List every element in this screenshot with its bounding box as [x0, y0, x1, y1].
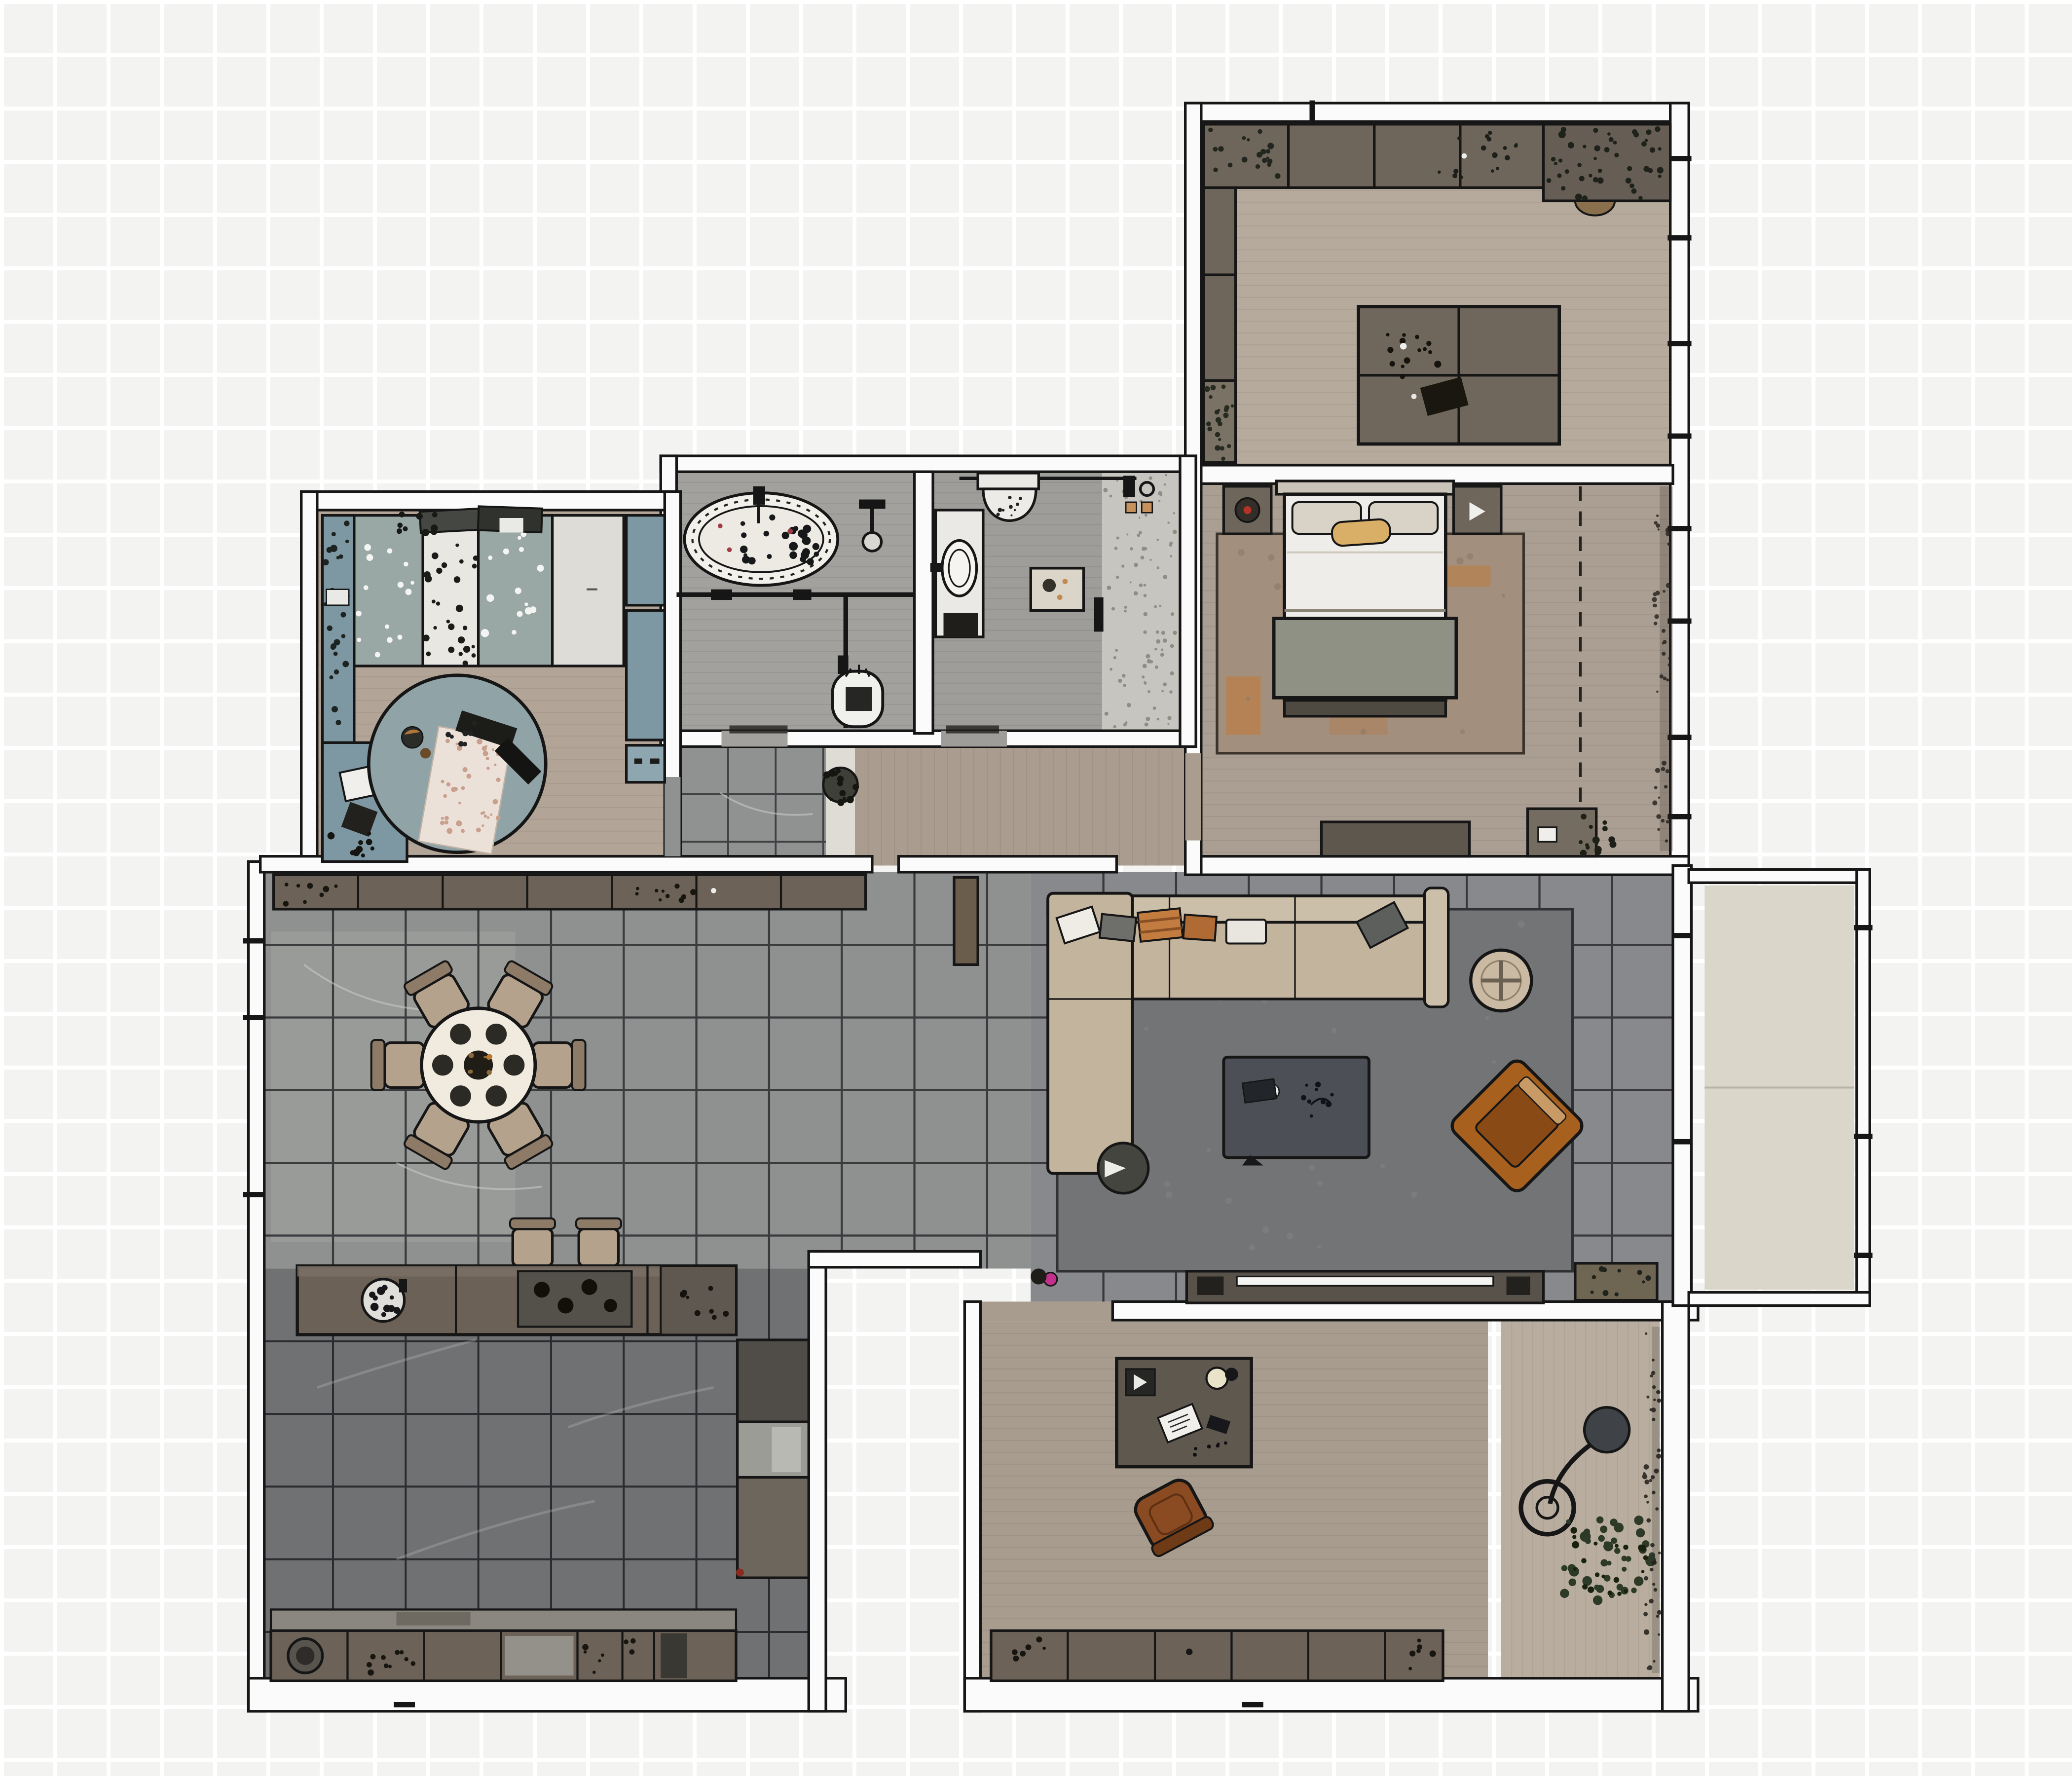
speck — [1492, 152, 1497, 158]
speck — [598, 1659, 601, 1662]
speck — [1496, 167, 1499, 170]
speck — [1626, 178, 1631, 184]
speck — [1173, 512, 1175, 514]
speck — [814, 552, 819, 557]
speck — [1009, 505, 1013, 509]
speck — [335, 720, 341, 725]
speck — [483, 751, 487, 755]
dinner-plate — [504, 1055, 525, 1076]
speck — [839, 790, 846, 796]
speck — [1025, 514, 1027, 516]
speck — [1636, 1528, 1645, 1537]
speck — [1452, 173, 1457, 178]
speck — [1423, 347, 1427, 351]
speck — [764, 531, 770, 537]
speck — [1107, 586, 1111, 590]
speck — [1013, 1656, 1019, 1662]
decor-speck — [1462, 153, 1467, 159]
speck — [377, 1287, 385, 1295]
dinner-plate — [450, 1085, 471, 1107]
desk-lamp-arm — [1225, 1368, 1238, 1381]
sideboard — [273, 875, 865, 909]
speck — [1654, 622, 1658, 626]
speck — [1330, 1093, 1333, 1096]
speck — [487, 816, 490, 819]
speck — [1166, 1191, 1173, 1198]
speck — [1593, 128, 1598, 133]
speck — [1390, 361, 1395, 367]
speck — [436, 568, 442, 574]
speck — [459, 559, 464, 564]
speck — [518, 536, 521, 540]
speck — [1656, 515, 1659, 517]
speck — [1641, 1570, 1645, 1573]
speck — [424, 571, 431, 578]
speck — [1639, 1545, 1646, 1552]
speck — [1662, 761, 1666, 766]
vanity-stool — [944, 613, 978, 637]
speck — [1598, 169, 1602, 173]
speck — [1111, 607, 1115, 610]
speck — [837, 799, 844, 806]
speck — [385, 625, 389, 629]
speck — [1617, 1591, 1622, 1596]
speck — [1142, 547, 1146, 551]
speck — [461, 829, 465, 833]
speck — [1593, 1595, 1602, 1605]
speck — [432, 512, 438, 518]
speck — [1426, 341, 1432, 346]
speck — [456, 605, 463, 612]
stool-seat — [513, 1229, 552, 1266]
speck — [387, 637, 393, 643]
window-tick — [1309, 101, 1315, 124]
speck — [1572, 1535, 1576, 1539]
speck — [1560, 1589, 1569, 1598]
speck — [433, 626, 437, 629]
speck — [387, 548, 393, 554]
speck — [463, 661, 468, 666]
speck — [416, 513, 423, 520]
speck — [400, 1650, 404, 1654]
partition-clamp — [711, 590, 732, 600]
window-tick — [1667, 235, 1691, 241]
red-dot-item — [736, 1568, 744, 1576]
speck — [1167, 716, 1171, 720]
wall-shadow — [1660, 486, 1673, 851]
speck — [1652, 800, 1657, 805]
speck — [1614, 1548, 1620, 1554]
speck — [342, 661, 349, 667]
speck — [1607, 132, 1611, 136]
hallway-strip-floor — [826, 746, 855, 865]
speck — [537, 565, 544, 572]
speck — [1481, 146, 1486, 151]
speck — [1167, 521, 1170, 524]
speck — [458, 802, 461, 805]
speck — [1644, 1629, 1649, 1635]
shower-head-2 — [1123, 476, 1135, 497]
speck — [655, 889, 658, 892]
speck — [1169, 542, 1173, 545]
speck — [1572, 1541, 1579, 1549]
speck — [1614, 153, 1619, 157]
speck — [481, 629, 489, 637]
speck — [1644, 1480, 1649, 1484]
speck — [330, 675, 333, 679]
wall — [249, 861, 264, 1711]
speck — [1646, 129, 1652, 135]
window-tick — [1854, 1253, 1873, 1258]
speck — [1305, 1083, 1308, 1086]
speck — [674, 884, 679, 888]
speck — [436, 601, 440, 605]
speck — [1415, 335, 1419, 339]
wall — [1673, 865, 1692, 1305]
hallway-floor — [680, 746, 826, 865]
speck — [1170, 671, 1174, 675]
speck — [1667, 663, 1671, 666]
bathtub-faucet — [753, 486, 765, 505]
speck — [1581, 1558, 1587, 1563]
speck — [1247, 138, 1250, 141]
speck — [1169, 690, 1173, 694]
speck — [1130, 547, 1133, 551]
speck — [1361, 729, 1366, 734]
speck — [512, 630, 517, 635]
speck — [367, 554, 373, 561]
decor-speck — [1411, 394, 1417, 399]
speck — [1665, 769, 1669, 773]
speck — [1170, 555, 1172, 557]
speck — [1518, 921, 1525, 927]
speck — [1126, 534, 1128, 536]
speck — [370, 1303, 379, 1311]
speck — [330, 545, 337, 552]
speck — [1594, 1585, 1599, 1590]
speck — [852, 784, 859, 790]
speck — [334, 669, 339, 674]
speck — [1123, 684, 1126, 687]
speck — [1600, 1525, 1607, 1533]
speck — [1127, 703, 1131, 707]
wall — [1185, 856, 1689, 875]
speck — [1596, 1517, 1604, 1524]
speck — [1568, 142, 1574, 148]
bar-stool — [576, 1219, 621, 1266]
speck — [1632, 129, 1637, 135]
shower-mount — [859, 500, 886, 509]
speck — [1581, 814, 1587, 819]
speck — [1042, 1647, 1046, 1650]
speck — [455, 544, 459, 547]
tv-screen — [1237, 1277, 1493, 1286]
tall-unit — [738, 1340, 809, 1422]
burner — [534, 1282, 550, 1297]
speck — [1287, 1232, 1294, 1239]
speck — [1434, 361, 1441, 368]
shower-knob — [1142, 502, 1152, 513]
speck — [441, 817, 444, 820]
speck — [1645, 1275, 1651, 1281]
speck — [767, 554, 772, 559]
speck — [1160, 653, 1164, 657]
shower-door-handle — [1094, 597, 1104, 632]
speck — [332, 706, 338, 712]
speck — [712, 1315, 717, 1320]
speck — [1002, 509, 1004, 511]
speck — [1602, 820, 1607, 825]
speck — [446, 620, 450, 624]
speck — [334, 885, 337, 888]
speck — [1161, 690, 1164, 692]
burner — [604, 1299, 617, 1312]
desk-lamp — [1207, 1368, 1228, 1389]
speck — [746, 557, 751, 561]
wall — [1670, 103, 1689, 875]
speck — [1145, 514, 1147, 517]
speck — [1637, 1270, 1642, 1275]
speck — [1016, 503, 1019, 506]
shelf-mark — [650, 759, 660, 764]
speck — [486, 1070, 492, 1075]
speck — [1213, 167, 1218, 172]
speck — [1204, 386, 1210, 392]
speck — [399, 512, 405, 518]
speck — [1386, 333, 1389, 336]
speck — [440, 820, 444, 825]
speck — [690, 889, 696, 895]
speck — [381, 1655, 386, 1660]
speck — [388, 1665, 392, 1668]
speck — [1460, 729, 1465, 734]
pillow — [1138, 908, 1183, 942]
speck — [368, 1669, 374, 1676]
speck — [813, 543, 819, 550]
speck — [1163, 638, 1167, 643]
speck — [1301, 1095, 1306, 1101]
speck — [1163, 575, 1167, 579]
speck — [1638, 196, 1643, 200]
speck — [1658, 796, 1661, 799]
speck — [1665, 531, 1670, 536]
speck — [515, 588, 521, 594]
shower-floor — [1102, 472, 1180, 731]
console-item — [1197, 1277, 1224, 1295]
speck — [492, 748, 494, 751]
speck — [1643, 1555, 1648, 1560]
speck — [1116, 576, 1119, 579]
speck — [723, 1311, 729, 1317]
speck — [1144, 584, 1147, 587]
speck — [1579, 176, 1585, 181]
speck — [319, 892, 324, 897]
speck — [357, 638, 361, 642]
coffee-table-book — [1242, 1079, 1276, 1103]
burner — [557, 1297, 573, 1313]
speck — [1624, 1589, 1628, 1593]
speck — [494, 764, 496, 766]
speck — [1585, 843, 1589, 847]
window-tick — [1667, 434, 1691, 439]
speck — [1453, 169, 1458, 174]
dinner-plate — [485, 1085, 507, 1107]
speck — [769, 515, 775, 520]
speck — [1657, 167, 1664, 173]
sofa-pillow-striped — [1138, 908, 1183, 942]
speck — [1010, 515, 1012, 517]
bed-accent-pillow — [1331, 518, 1391, 546]
speck — [1147, 659, 1151, 664]
speck — [1589, 174, 1592, 177]
speck — [740, 546, 748, 554]
speck — [1622, 1567, 1627, 1572]
speck — [601, 1653, 604, 1657]
speck — [472, 720, 477, 725]
bath-mat-item — [1063, 579, 1068, 584]
speck — [807, 558, 814, 565]
speck — [398, 582, 404, 588]
speck — [323, 559, 329, 565]
speck — [741, 532, 746, 538]
tv-dresser — [1322, 822, 1470, 856]
speck — [481, 824, 484, 827]
bedroom-mat-item — [1538, 827, 1557, 842]
speck — [1661, 767, 1665, 772]
speck — [1008, 496, 1011, 499]
speck — [1332, 1028, 1337, 1033]
kids-blanket — [423, 516, 479, 666]
speck — [1417, 1644, 1422, 1650]
speck — [1558, 131, 1566, 138]
speck — [1221, 456, 1225, 461]
speck — [384, 1664, 388, 1668]
speck — [1634, 1576, 1644, 1586]
wall — [1185, 103, 1689, 122]
speck — [1223, 412, 1228, 418]
speck — [1614, 1577, 1620, 1583]
speck — [1221, 384, 1226, 389]
wall — [301, 491, 317, 879]
speck — [1662, 652, 1665, 656]
wall — [809, 1252, 826, 1711]
closet-cabinet — [1204, 275, 1235, 380]
speck — [1438, 170, 1441, 174]
speck — [446, 828, 452, 834]
speck — [1566, 1519, 1571, 1524]
wall — [809, 1252, 980, 1267]
speck — [530, 606, 537, 613]
toy-piece — [420, 748, 431, 758]
speck — [1262, 1226, 1269, 1233]
office-bridge-floor — [981, 1301, 1113, 1321]
speck — [1139, 517, 1141, 519]
speck — [1380, 1163, 1385, 1168]
speck — [1220, 446, 1223, 449]
speck — [353, 849, 360, 856]
speck — [798, 529, 806, 537]
speck — [1557, 173, 1561, 178]
kitchen-faucet — [399, 1279, 407, 1293]
speck — [1193, 1453, 1197, 1457]
toilet-tank — [978, 473, 1038, 489]
speck — [1417, 1639, 1421, 1643]
chair-seat — [532, 1042, 572, 1087]
speck — [1158, 500, 1160, 502]
speck — [1649, 1479, 1652, 1482]
speck — [328, 832, 335, 840]
speck — [836, 769, 841, 774]
speck — [303, 900, 307, 904]
speck — [1246, 697, 1251, 701]
speck — [1173, 530, 1177, 534]
speck — [1457, 136, 1461, 140]
speck — [1667, 542, 1671, 546]
speck — [476, 827, 481, 832]
speck — [1228, 163, 1233, 168]
speck — [1402, 333, 1406, 337]
speck — [1103, 488, 1108, 492]
speck — [998, 508, 1002, 512]
tall-unit — [738, 1478, 809, 1578]
coffee-table — [1223, 1057, 1369, 1158]
kids-wardrobe — [553, 516, 624, 666]
speck — [1656, 691, 1659, 693]
bed-foot-bench — [1285, 701, 1446, 716]
shelf-mark — [634, 759, 642, 764]
speck — [1578, 195, 1582, 198]
speck — [1161, 648, 1163, 651]
speck — [1155, 666, 1158, 669]
speck — [1662, 629, 1665, 633]
speck — [1488, 131, 1492, 135]
speck — [1012, 1649, 1018, 1655]
speck — [1105, 712, 1109, 716]
speck — [1592, 1275, 1596, 1280]
speck — [695, 1310, 701, 1316]
speck — [1014, 509, 1016, 511]
speck — [331, 643, 336, 649]
speck — [443, 794, 447, 798]
speck — [1609, 137, 1614, 142]
window-tick — [1667, 341, 1691, 346]
kids-shelf-item — [327, 590, 349, 605]
speck — [1602, 826, 1608, 831]
speck — [367, 1662, 372, 1667]
speck — [410, 581, 414, 585]
speck — [1163, 682, 1167, 686]
speck — [472, 564, 477, 569]
speck — [397, 528, 402, 534]
speck — [1238, 549, 1245, 556]
speck — [1583, 145, 1586, 148]
speck — [486, 594, 494, 602]
speck — [1592, 836, 1600, 844]
speck — [1644, 1494, 1648, 1498]
pillow — [420, 509, 481, 533]
speck — [333, 652, 338, 656]
shower-knob — [1126, 502, 1136, 513]
office-cabinets — [991, 1630, 1443, 1681]
window-tick — [1854, 1134, 1873, 1139]
speck — [451, 787, 456, 792]
stool-back — [576, 1219, 621, 1229]
burner — [582, 1279, 597, 1295]
speck — [681, 1290, 687, 1296]
speck — [1654, 614, 1659, 619]
speck — [1646, 1396, 1649, 1399]
speck — [503, 549, 509, 555]
